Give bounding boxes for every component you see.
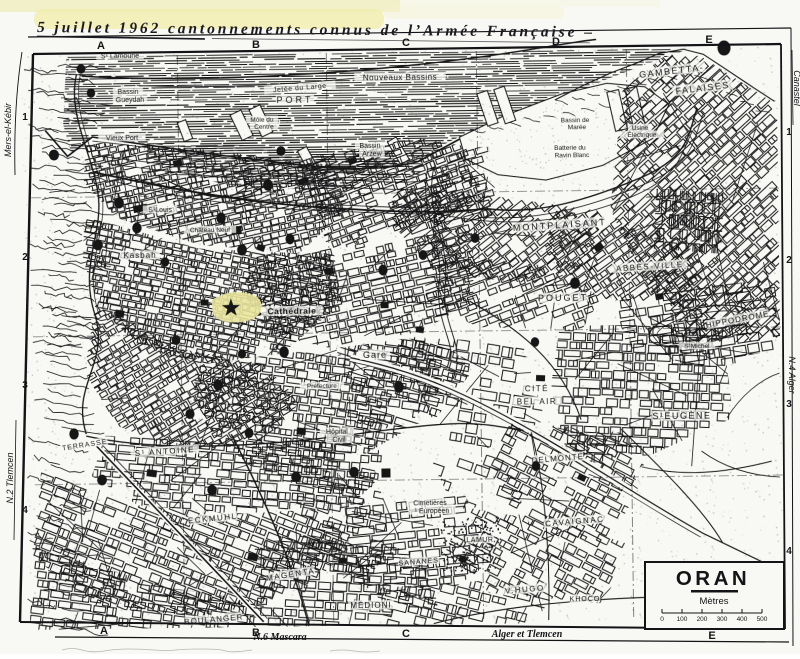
svg-text:Marée: Marée <box>568 124 587 131</box>
svg-text:Alger et Tlemcen: Alger et Tlemcen <box>491 629 563 640</box>
svg-text:Centre: Centre <box>254 124 274 131</box>
svg-text:400: 400 <box>737 616 748 623</box>
svg-text:Kasbah: Kasbah <box>123 251 156 260</box>
svg-text:300: 300 <box>717 616 728 623</box>
svg-text:MÉDIONI: MÉDIONI <box>350 601 391 611</box>
svg-text:100: 100 <box>677 616 688 623</box>
svg-text:3: 3 <box>786 399 792 410</box>
svg-text:C: C <box>402 628 410 640</box>
svg-text:Bassin: Bassin <box>359 143 380 150</box>
svg-text:Électrique: Électrique <box>627 130 656 139</box>
svg-text:Nouveaux Bassins: Nouveaux Bassins <box>363 72 437 82</box>
svg-text:1: 1 <box>22 112 28 123</box>
svg-text:Mètres: Mètres <box>699 596 728 607</box>
svg-text:0: 0 <box>660 616 664 623</box>
svg-text:Hôpital: Hôpital <box>326 429 348 436</box>
svg-text:S¹EUGÈNE: S¹EUGÈNE <box>652 411 711 422</box>
svg-text:Arzew: Arzew <box>362 151 382 158</box>
svg-text:N.2 Tlemcen: N.2 Tlemcen <box>5 452 15 503</box>
svg-text:Cimetières: Cimetières <box>413 500 447 507</box>
svg-text:LAMUR: LAMUR <box>466 537 493 544</box>
svg-text:Civil: Civil <box>332 437 346 444</box>
svg-text:B: B <box>252 39 260 51</box>
svg-text:E: E <box>705 34 712 46</box>
svg-text:Gare: Gare <box>363 350 387 360</box>
svg-text:Gueydah: Gueydah <box>116 97 145 104</box>
svg-text:PORT: PORT <box>277 95 314 105</box>
svg-text:Cathédrale: Cathédrale <box>267 306 316 317</box>
svg-text:ORAN: ORAN <box>676 567 750 590</box>
svg-text:500: 500 <box>757 616 768 623</box>
svg-text:CITÉ: CITÉ <box>525 384 549 393</box>
svg-text:1: 1 <box>786 127 792 138</box>
svg-text:Préfecture: Préfecture <box>307 383 337 390</box>
svg-text:BEL AIR: BEL AIR <box>517 397 558 407</box>
svg-text:N.4 Alger: N.4 Alger <box>787 356 797 394</box>
svg-text:200: 200 <box>697 616 708 623</box>
svg-text:4: 4 <box>786 546 792 557</box>
svg-text:Château Neuf: Château Neuf <box>190 227 230 235</box>
svg-text:KHOCO: KHOCO <box>570 596 601 603</box>
svg-text:Canastel: Canastel <box>792 70 800 107</box>
svg-text:Mers-el-Kébir: Mers-el-Kébir <box>3 102 13 157</box>
svg-text:Bassin: Bassin <box>117 89 138 96</box>
svg-text:4: 4 <box>22 505 28 516</box>
svg-text:POUGET: POUGET <box>538 293 588 304</box>
svg-text:2: 2 <box>22 252 28 263</box>
svg-text:¹ Européen: ¹ Européen <box>415 508 450 515</box>
svg-text:2: 2 <box>786 255 792 266</box>
svg-text:N.6 Mascara: N.6 Mascara <box>252 632 306 643</box>
svg-text:Vieux Port: Vieux Port <box>106 135 138 142</box>
svg-text:A: A <box>97 40 105 52</box>
svg-text:S¹Louis: S¹Louis <box>148 207 172 214</box>
svg-text:3: 3 <box>22 380 28 391</box>
svg-text:A: A <box>100 625 108 637</box>
svg-text:E: E <box>708 630 715 642</box>
svg-text:Ravin Blanc: Ravin Blanc <box>555 152 591 159</box>
svg-text:S¹Michel: S¹Michel <box>684 343 710 350</box>
